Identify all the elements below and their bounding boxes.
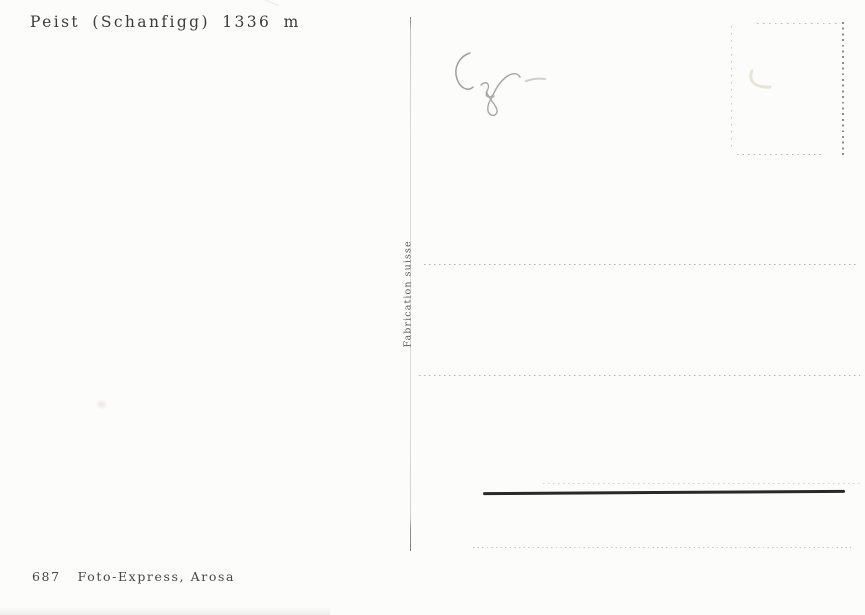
publisher-imprint: 687Foto-Express, Arosa [32,569,235,584]
paper-smudge [95,399,108,410]
drawn-solid-ink-line [483,490,845,495]
address-line-3 [543,483,862,484]
handwritten-pencil-scribble [440,40,570,120]
postcard-caption: Peist (Schanfigg) 1336 m [30,13,301,31]
stamp-box-bottom-edge [737,154,824,155]
postcard-back: Peist (Schanfigg) 1336 m Fabrication sui… [0,0,865,615]
stamp-box-right-edge [842,22,844,159]
stamp-box-faint-smear [746,68,780,96]
imprint-publisher: Foto-Express, Arosa [78,569,235,584]
bottom-edge-shading [0,607,330,615]
address-line-1 [424,264,856,265]
fabrication-suisse-label: Fabrication suisse [403,248,414,348]
stamp-box-top-edge [757,23,840,24]
address-line-4 [473,547,851,548]
address-line-2 [419,375,860,376]
stamp-box-left-edge [731,26,732,150]
imprint-number: 687 [32,569,61,584]
paper-scratch-mark [263,0,278,6]
